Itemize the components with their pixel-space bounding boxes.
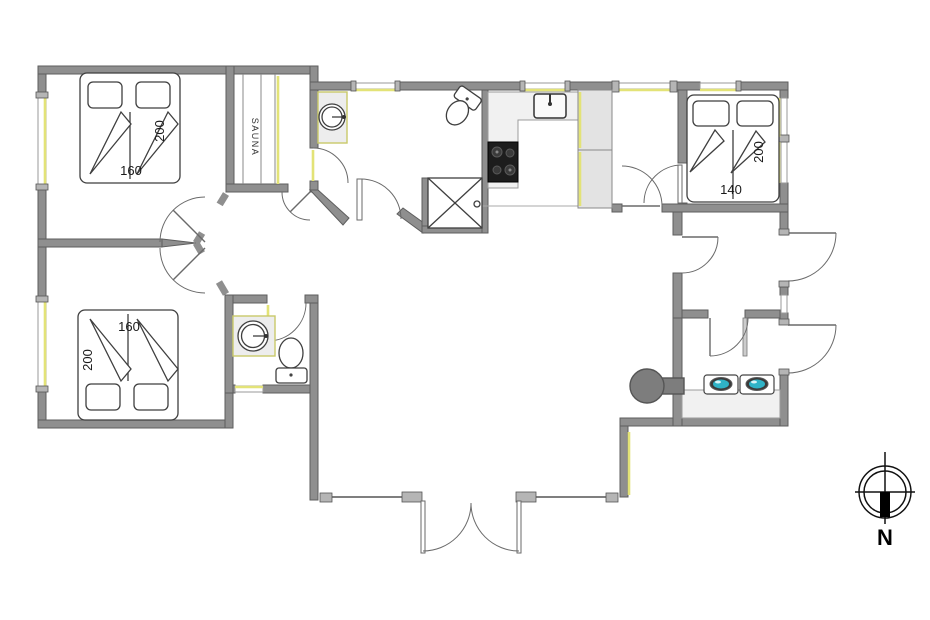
bathroom-top xyxy=(318,85,482,228)
door-swing-icon-entrance-right xyxy=(471,503,519,551)
compass-north-label: N xyxy=(877,525,893,550)
door-leaf xyxy=(357,179,362,220)
door-leaf xyxy=(421,501,425,553)
wall-annex-north-a xyxy=(682,310,708,318)
cooktop-burner xyxy=(493,166,501,174)
wall-sauna-west xyxy=(226,66,234,192)
wall-top-mid-c xyxy=(568,82,617,90)
bedroom-bottom-left: 160 200 xyxy=(78,310,178,420)
pillow-icon xyxy=(136,82,170,108)
pillow-icon xyxy=(88,82,122,108)
wall-living-east xyxy=(620,423,628,497)
bed-length-label: 200 xyxy=(80,349,95,371)
pillow-icon xyxy=(737,101,773,126)
wall-bath1-diagonal-a xyxy=(310,190,349,225)
window-icon xyxy=(617,83,673,89)
window-icon xyxy=(353,83,398,89)
facade-post xyxy=(606,493,618,502)
window-icon xyxy=(781,295,787,313)
wall-rightwing-west-b xyxy=(673,273,682,318)
wall-rightwing-west-a xyxy=(673,212,682,235)
window-post xyxy=(395,81,400,91)
window-post xyxy=(36,184,48,190)
toilet-icon xyxy=(279,338,303,368)
door-frame-post-left xyxy=(402,492,422,502)
compass-rose: N xyxy=(855,452,915,550)
wall-annex-north-b xyxy=(745,310,780,318)
facade-post xyxy=(320,493,332,502)
window-post xyxy=(565,81,570,91)
door-swing-icon-bath1 xyxy=(361,179,401,219)
window-post xyxy=(36,92,48,98)
tall-cupboard xyxy=(578,90,612,208)
cooktop-burner xyxy=(506,149,514,157)
door-leaf xyxy=(290,192,310,212)
wall-east-e xyxy=(780,373,788,426)
wall-annex-stub xyxy=(743,318,747,356)
door-swing-icon-hall xyxy=(622,166,662,206)
wall-bath2-north-b xyxy=(305,295,318,303)
door-swing-icon-exterior-2 xyxy=(788,325,836,373)
door-swing-icon-annex xyxy=(710,318,748,356)
door-post xyxy=(779,319,789,325)
wall-hall-north-b xyxy=(662,204,788,212)
wall-rightwing-west-c xyxy=(673,318,682,426)
door-post xyxy=(779,369,789,375)
window-post xyxy=(351,81,356,91)
window-icon xyxy=(700,83,740,89)
wall-bedroom-right-west-a xyxy=(678,90,687,163)
basin-tap-dot xyxy=(342,115,346,119)
bed-width-label: 160 xyxy=(120,163,142,178)
window-post xyxy=(612,81,619,92)
window-post xyxy=(36,386,48,392)
wall-sauna-south xyxy=(226,184,288,192)
sauna-room: SAUNA xyxy=(243,74,278,184)
door-gap xyxy=(202,204,219,233)
bed-length-label: 200 xyxy=(152,120,167,142)
wall-chevron-point xyxy=(162,239,196,247)
kitchen xyxy=(488,90,612,208)
window-icon xyxy=(781,98,787,137)
pillow-icon xyxy=(134,384,168,410)
gas-burner-icon xyxy=(704,375,738,394)
window-post xyxy=(36,296,48,302)
sauna-label: SAUNA xyxy=(250,118,260,157)
wall-kitchen-west xyxy=(482,90,488,233)
door-gap xyxy=(202,253,219,282)
bathroom-bottom xyxy=(233,316,307,383)
burner-dot xyxy=(509,169,512,172)
door-leaf xyxy=(678,165,682,203)
bed-width-label: 140 xyxy=(720,182,742,197)
wall-shower-west xyxy=(422,178,428,233)
burner-highlight xyxy=(715,381,721,384)
door-post xyxy=(779,281,789,287)
wall-east-c xyxy=(780,287,788,295)
shower-drain xyxy=(474,201,480,207)
compass-north-pointer xyxy=(880,492,890,517)
burner-flame xyxy=(713,380,729,389)
wall-bath2-west xyxy=(225,295,233,393)
wall-top-left xyxy=(38,66,318,74)
door-swing-icon-exterior-1 xyxy=(788,233,836,281)
wall-top-mid-a xyxy=(310,82,353,90)
burner-flame xyxy=(749,380,765,389)
sink-tap-dot xyxy=(548,102,552,106)
floor-plan-drawing: SAUNA 160 200 160 200 140 200 xyxy=(0,0,930,620)
door-leaf xyxy=(173,248,205,280)
bedroom-right: 140 200 xyxy=(687,95,779,202)
wall-bath1-west-a xyxy=(310,90,318,148)
basin-tap-dot xyxy=(264,334,268,338)
cooktop-icon xyxy=(488,142,518,182)
burner-highlight xyxy=(751,381,757,384)
bedroom-top-left: 160 200 xyxy=(80,73,180,183)
door-swing-icon-rightwing xyxy=(682,237,718,273)
window-post xyxy=(670,81,677,92)
window-icon xyxy=(781,142,787,183)
window-icon xyxy=(523,83,568,89)
pillow-icon xyxy=(693,101,729,126)
pillow-icon xyxy=(86,384,120,410)
door-swing-icon-sauna-glass xyxy=(313,148,348,183)
wood-stove-icon xyxy=(630,369,664,403)
bed-length-label: 200 xyxy=(751,141,766,163)
door-swing-icon-bedroom-right xyxy=(644,165,682,203)
entrance-double-door xyxy=(421,501,521,553)
window-post xyxy=(736,81,741,91)
door-swing-icon-entrance-left xyxy=(423,503,471,551)
window-post xyxy=(520,81,525,91)
toilet-icon xyxy=(439,85,482,131)
door-post xyxy=(779,229,789,235)
gas-burner-icon xyxy=(740,375,774,394)
bed-width-label: 160 xyxy=(118,319,140,334)
toilet-button xyxy=(289,373,292,376)
wall-bedroom-divider xyxy=(38,239,162,247)
window-mullion xyxy=(779,135,789,142)
wall-top-right-b xyxy=(740,82,788,90)
annex-room xyxy=(682,375,780,418)
wall-living-west xyxy=(310,295,318,500)
floor-plan-page: SAUNA 160 200 160 200 140 200 xyxy=(0,0,930,620)
burner-dot xyxy=(496,151,499,154)
wall-hall-north-a xyxy=(612,204,622,212)
door-leaf xyxy=(517,501,521,553)
wall-southeast xyxy=(620,418,788,426)
wall-bedroom2-south xyxy=(38,420,233,428)
